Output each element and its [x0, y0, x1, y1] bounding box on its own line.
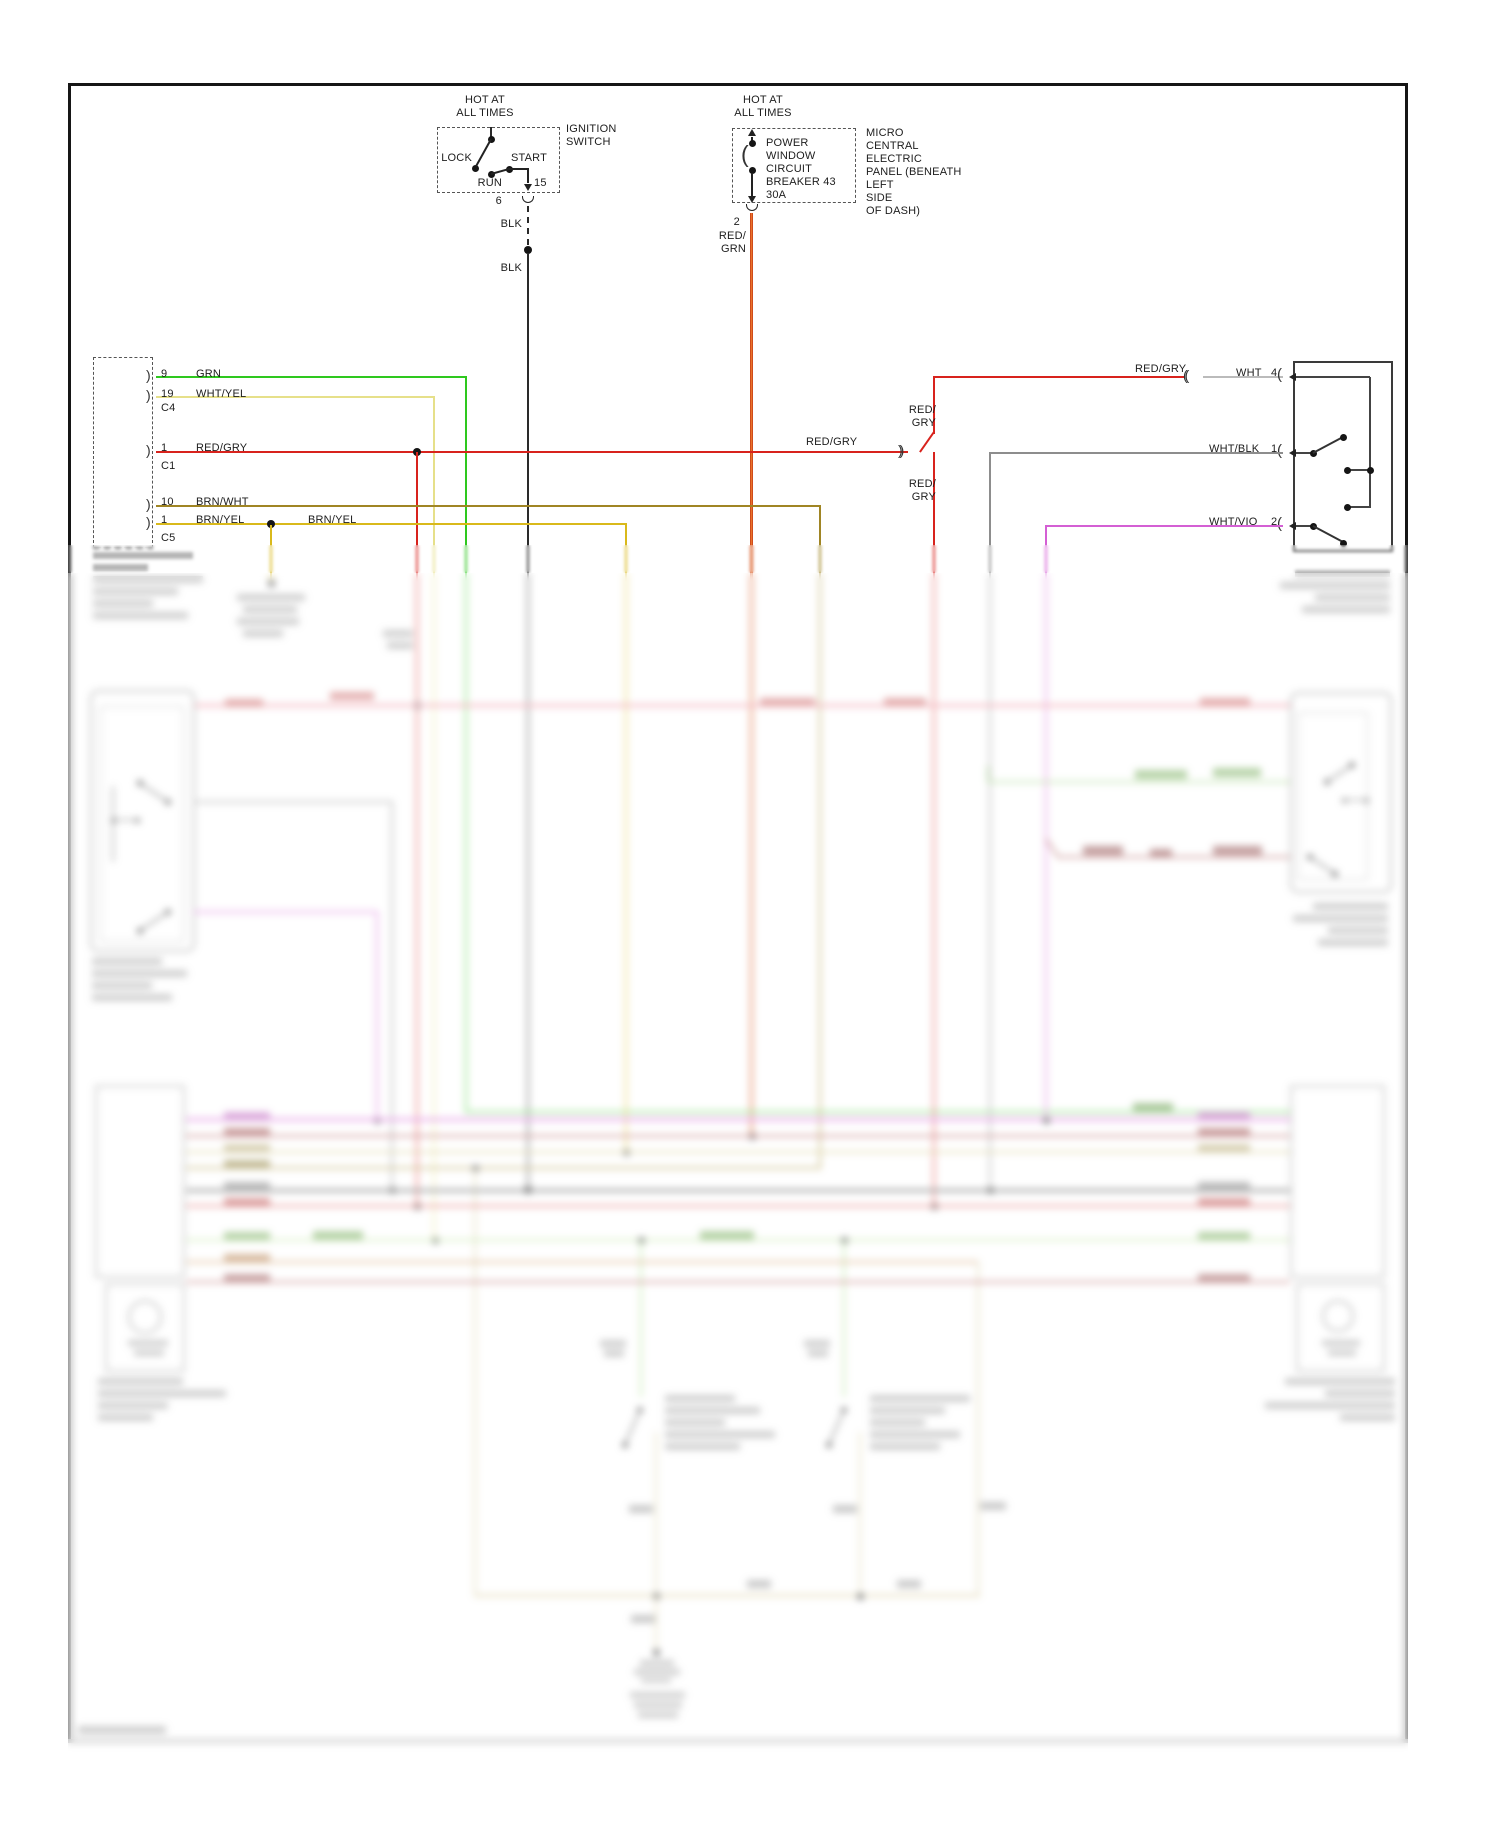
wire-label-brn-yel: BRN/YEL — [308, 514, 356, 526]
#d45fd4 — [186, 1118, 1290, 1121]
#2ec81e — [465, 376, 467, 1113]
#d8231d — [156, 451, 908, 453]
#777 — [1344, 799, 1367, 801]
blurred-text-bar — [1325, 1390, 1395, 1397]
junction-dot — [826, 1442, 832, 1448]
#d8231d — [416, 452, 418, 1207]
blurred-text-bar — [128, 1340, 168, 1346]
#a08524 — [156, 505, 820, 507]
wire-label-red-gry: RED/GRY — [1135, 363, 1186, 375]
blurred-text-bar — [92, 994, 172, 1001]
#222 — [527, 169, 529, 183]
junction-dot — [268, 580, 275, 587]
blurred-wire-label — [313, 1231, 363, 1240]
wiring-diagram-canvas: ()))))))((((( HOT AT ALL TIMES IGNITION … — [0, 0, 1500, 1828]
#d45fd4 — [1045, 525, 1047, 1120]
blurred-text-bar — [640, 1660, 674, 1666]
blurred-wire-label — [631, 1615, 655, 1623]
#d6c997 — [655, 1432, 657, 1596]
wire-segment — [1045, 838, 1060, 858]
#a03030 — [186, 1135, 1290, 1137]
pin-number: 9 — [161, 368, 167, 380]
connector-symbol: ( — [741, 143, 749, 166]
motor-symbol — [128, 1300, 162, 1334]
ignition-position-run: RUN — [474, 177, 502, 189]
hot-at-all-times-label: HOT AT — [447, 94, 523, 106]
wire-label-blk: BLK — [494, 262, 522, 274]
junction-dot — [749, 140, 756, 147]
blurred-text-bar — [243, 606, 297, 613]
arrowhead-down — [524, 184, 532, 191]
connector-symbol: ( — [1277, 443, 1282, 458]
#777 — [112, 786, 114, 862]
blurred-wire-label — [224, 1128, 270, 1136]
wire-label-red-gry: RED/ — [896, 404, 936, 416]
junction-dot — [987, 1187, 994, 1194]
connector-symbol: ) — [146, 368, 151, 382]
blurred-text-bar — [1293, 915, 1388, 922]
blurred-text-bar — [237, 594, 305, 601]
blurred-text-bar — [808, 1350, 828, 1357]
blurred-text-bar — [665, 1395, 735, 1402]
blurred-text-bar — [1328, 1350, 1356, 1356]
panel-location-label: SIDE — [866, 192, 892, 204]
arrowhead-left — [1289, 373, 1296, 381]
component-box — [95, 1085, 185, 1278]
blurred-text-bar — [98, 1390, 226, 1397]
blurred-text-bar — [665, 1431, 775, 1438]
arrowhead-left — [1289, 449, 1296, 457]
page-border — [68, 83, 1408, 86]
blurred-wire-label — [1198, 1274, 1250, 1282]
breaker-name: CIRCUIT — [766, 163, 812, 175]
blurred-text-bar — [387, 642, 413, 649]
blurred-wire-label — [747, 1580, 771, 1588]
blurred-wire-label — [884, 698, 926, 706]
blurred-text-bar — [1280, 582, 1390, 589]
blurred-text-bar — [600, 1340, 626, 1347]
blurred-wire-label — [1133, 1103, 1173, 1112]
blurred-wire-label — [1198, 1182, 1250, 1190]
junction-dot — [135, 818, 140, 823]
#222 — [751, 173, 753, 196]
blurred-wire-label — [1135, 770, 1187, 779]
connector-pin-6-label: 6 — [488, 195, 502, 207]
connector-id-c5: C5 — [161, 532, 175, 544]
#9cd878 — [843, 1240, 845, 1397]
arrowhead-down — [748, 196, 756, 203]
#d9b91b — [625, 523, 627, 1152]
blurred-text-bar — [634, 1669, 680, 1675]
blurred-text-bar — [93, 600, 153, 607]
#222 — [509, 168, 529, 170]
component-box — [1290, 1085, 1385, 1278]
junction-dot — [1344, 504, 1351, 511]
blurred-wire-label — [224, 1274, 270, 1282]
blurred-text-bar — [78, 1726, 166, 1734]
blurred-text-bar — [383, 630, 413, 637]
blurred-text-bar — [665, 1407, 760, 1414]
blurred-text-bar — [98, 1378, 183, 1385]
blurred-text-bar — [604, 1350, 624, 1357]
blurred-text-bar — [1318, 939, 1388, 946]
dashed-wire — [527, 206, 529, 248]
blurred-text-bar — [641, 1678, 671, 1683]
blurred-text-bar — [92, 970, 187, 977]
panel-location-label: CENTRAL — [866, 140, 919, 152]
junction-dot — [137, 780, 143, 786]
wire-segment — [828, 1410, 845, 1446]
#d6c997 — [655, 1596, 657, 1650]
blurred-text-bar — [870, 1395, 970, 1402]
connector-id-c1: C1 — [161, 460, 175, 472]
blurred-wire-label — [1200, 698, 1250, 706]
wire-label-wht-yel: WHT/YEL — [196, 388, 246, 400]
#d45fd4 — [376, 911, 378, 1121]
blurred-text-bar — [1265, 1402, 1395, 1409]
hot-at-all-times-label: ALL TIMES — [725, 107, 801, 119]
junction-dot — [1340, 434, 1347, 441]
blurred-text-bar — [1328, 927, 1388, 934]
hot-at-all-times-label: HOT AT — [725, 94, 801, 106]
junction-dot — [137, 928, 143, 934]
wire-label-red-grn: GRN — [704, 243, 746, 255]
blurred-text-bar — [93, 588, 178, 595]
blurred-text-bar — [1315, 594, 1390, 601]
panel-location-label: MICRO — [866, 127, 904, 139]
component-box — [1293, 361, 1393, 552]
blurred-text-bar — [1340, 1414, 1395, 1421]
connector-symbol: ) — [146, 443, 151, 457]
junction-dot — [1344, 467, 1351, 474]
arrowhead-up — [748, 129, 756, 136]
connector-symbol: ) — [146, 515, 151, 529]
#d8231d — [933, 452, 935, 1207]
wire-label-brn-yel: BRN/YEL — [196, 514, 244, 526]
wire-segment — [919, 431, 935, 453]
connector-id-c4: C4 — [161, 402, 175, 414]
#d6c997 — [859, 1432, 861, 1596]
connector-socket — [522, 196, 534, 203]
#9cd878 — [640, 1240, 642, 1397]
diagram-artwork: ()))))))((((( — [0, 0, 1500, 1828]
blurred-text-bar — [98, 1414, 153, 1421]
blurred-wire-label — [330, 692, 374, 700]
connector-symbol: ) — [146, 388, 151, 402]
#d45fd4 — [193, 911, 378, 913]
page-border — [68, 83, 71, 1742]
dashed-connector-box — [93, 357, 153, 548]
blurred-wire-label — [1213, 846, 1262, 855]
blurred-wire-label — [980, 1502, 1006, 1510]
panel-location-label: PANEL (BENEATH — [866, 166, 962, 178]
blurred-text-bar — [630, 1692, 685, 1698]
blurred-text-bar — [1313, 903, 1388, 910]
blurred-wire-label — [897, 1580, 921, 1588]
blurred-text-bar — [665, 1419, 725, 1426]
wire-label-red-gry: RED/ — [896, 478, 936, 490]
blurred-text-bar — [92, 958, 162, 965]
wire-label-wht: WHT — [1236, 367, 1262, 379]
#a84040 — [186, 1281, 1290, 1283]
blurred-wire-label — [1198, 1144, 1250, 1152]
wire-label-red-gry: RED/GRY — [196, 442, 247, 454]
connector-symbol: ( — [1277, 516, 1282, 531]
junction-dot — [111, 818, 116, 823]
connector-symbol: )) — [898, 443, 901, 457]
blurred-text-bar — [638, 1712, 678, 1718]
motor-symbol — [1322, 1300, 1354, 1332]
ignition-position-start: START — [511, 152, 547, 164]
#cabc6e — [186, 1151, 1290, 1153]
wire-segment — [624, 1410, 641, 1446]
junction-dot — [1043, 1117, 1050, 1124]
blurred-wire-label — [833, 1505, 857, 1513]
#4a4a4a — [186, 1189, 1290, 1192]
#a08524 — [186, 1167, 821, 1169]
junction-dot — [1340, 540, 1347, 547]
junction-dot — [1332, 871, 1338, 877]
wire-label-wht-vio: WHT/VIO — [1209, 516, 1257, 528]
wire-label-wht-blk: WHT/BLK — [1209, 443, 1259, 455]
#8d8d8d — [193, 801, 393, 803]
pin-number: 4 — [1271, 367, 1277, 379]
hot-at-all-times-label: ALL TIMES — [447, 107, 523, 119]
#d6c997 — [474, 1594, 980, 1597]
blurred-text-bar — [870, 1431, 960, 1438]
blurred-text-bar — [870, 1443, 940, 1450]
blurred-text-bar — [93, 576, 203, 583]
#8d8d8d — [989, 452, 991, 1190]
blurred-text-bar — [1285, 1378, 1395, 1385]
#2a2a2a — [527, 253, 529, 1190]
blurred-text-bar — [634, 1702, 682, 1708]
#8d8d8d — [391, 801, 393, 1191]
panel-location-label: ELECTRIC — [866, 153, 922, 165]
#9a3838 — [1059, 856, 1290, 858]
blurred-text-bar — [237, 618, 299, 625]
blurred-wire-label — [1083, 846, 1123, 855]
wire-label-red-gry: RED/GRY — [806, 436, 857, 448]
#c4813f — [186, 1261, 979, 1263]
blurred-wire-label — [1213, 768, 1261, 777]
blurred-text-bar — [134, 1350, 164, 1356]
#cfc392 — [474, 1168, 476, 1596]
page-border — [1405, 83, 1408, 1742]
pin-number: 1 — [161, 442, 167, 454]
junction-dot — [653, 1649, 660, 1656]
blurred-text-bar — [93, 564, 148, 571]
ignition-switch-label: IGNITION — [566, 123, 617, 135]
#444 — [1296, 376, 1370, 378]
breaker-name: POWER — [766, 137, 809, 149]
#8ccb6a — [988, 781, 1290, 783]
wire-label-red-gry: GRY — [896, 417, 936, 429]
breaker-name: WINDOW — [766, 150, 815, 162]
pin-number: 2 — [1271, 516, 1277, 528]
pin-number: 1 — [161, 514, 167, 526]
breaker-name: BREAKER 43 — [766, 176, 836, 188]
wire-label-blk: BLK — [494, 218, 522, 230]
blurred-wire-label — [224, 1160, 270, 1168]
blurred-wire-label — [224, 1144, 270, 1152]
blurred-wire-label — [225, 699, 263, 707]
#cfc392 — [977, 1261, 979, 1596]
ignition-switch-label: SWITCH — [566, 136, 611, 148]
panel-location-label: LEFT — [866, 179, 894, 191]
blurred-wire-label — [700, 1231, 754, 1240]
blurred-wire-label — [224, 1232, 270, 1240]
blurred-text-bar — [92, 982, 152, 989]
#d8231d — [933, 376, 1185, 378]
blurred-text-bar — [665, 1443, 740, 1450]
junction-dot — [524, 1186, 532, 1194]
page-border — [68, 1739, 1408, 1743]
#cf3333 — [186, 1205, 1290, 1207]
blurred-wire-label — [224, 1112, 270, 1120]
ignition-position-lock: LOCK — [436, 152, 472, 164]
wire-label-brn-wht: BRN/WHT — [196, 496, 249, 508]
blurred-text-bar — [1322, 1340, 1360, 1346]
breaker-name: 30A — [766, 189, 786, 201]
blurred-text-bar — [243, 630, 283, 637]
blurred-wire-label — [224, 1254, 270, 1262]
pin-number: 19 — [161, 388, 174, 400]
#d9b91b — [270, 525, 272, 580]
#ea8090 — [193, 704, 1290, 707]
connector-symbol: ) — [146, 497, 151, 511]
wire-label-grn: GRN — [196, 368, 221, 380]
junction-dot — [857, 1593, 864, 1600]
blurred-wire-label — [1198, 1232, 1250, 1240]
terminal-15-label: 15 — [534, 177, 547, 189]
blurred-text-bar — [1302, 606, 1390, 613]
dashed-wire — [93, 547, 153, 549]
blurred-text-bar — [98, 1402, 168, 1409]
blurred-wire-label — [1198, 1128, 1250, 1136]
blurred-wire-label — [224, 1182, 270, 1190]
connector-socket — [746, 204, 758, 211]
pin-number: 1 — [1271, 443, 1277, 455]
blurred-text-bar — [804, 1340, 830, 1347]
blurred-wire-label — [224, 1198, 270, 1206]
#8ccb6a — [987, 766, 989, 782]
#444 — [1369, 377, 1371, 508]
wire-segment — [750, 213, 753, 1137]
junction-dot — [1367, 467, 1374, 474]
blurred-wire-label — [1198, 1112, 1250, 1120]
blurred-text-bar — [93, 552, 193, 559]
blurred-text-bar — [93, 612, 188, 619]
#a08524 — [819, 505, 821, 1168]
junction-dot — [622, 1442, 628, 1448]
blurred-text-bar — [870, 1407, 945, 1414]
wire-label-red-gry: GRY — [896, 491, 936, 503]
connector-pin-2-label: 2 — [726, 216, 740, 228]
blurred-wire-label — [760, 698, 815, 706]
junction-dot — [1349, 762, 1355, 768]
blurred-wire-label — [1198, 1198, 1250, 1206]
blurred-text-bar — [870, 1419, 925, 1426]
wire-label-red-grn: RED/ — [704, 230, 746, 242]
panel-location-label: OF DASH) — [866, 205, 920, 217]
pin-number: 10 — [161, 496, 174, 508]
blurred-wire-label — [1150, 849, 1172, 857]
connector-symbol: ( — [1277, 367, 1282, 382]
blurred-text-bar — [1295, 570, 1390, 577]
arrowhead-left — [1289, 522, 1296, 530]
blurred-wire-label — [629, 1505, 653, 1513]
